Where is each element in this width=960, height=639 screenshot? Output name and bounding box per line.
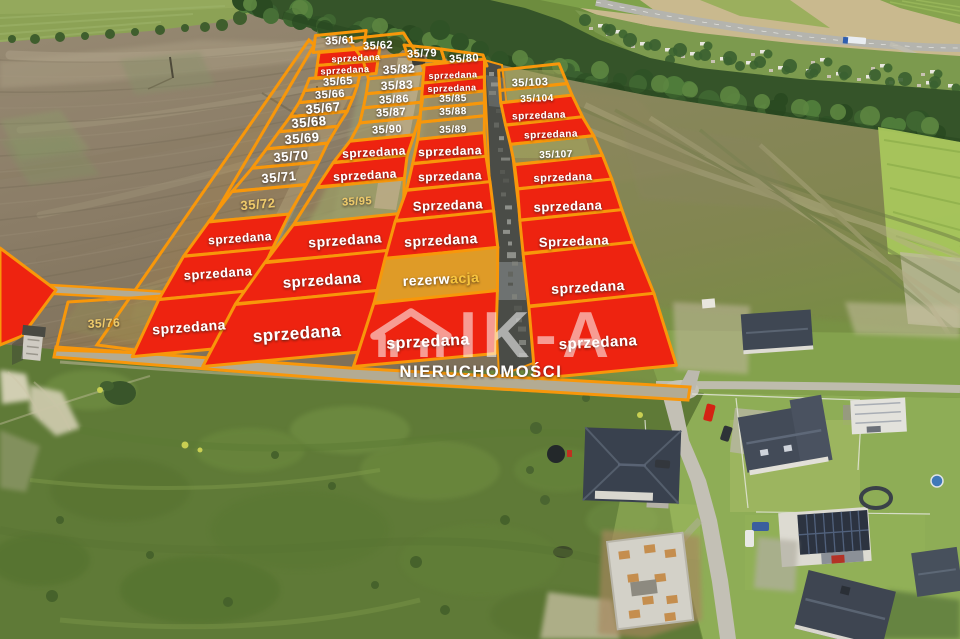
svg-text:sprzedana: sprzedana [533, 197, 603, 214]
svg-text:35/61: 35/61 [325, 34, 356, 48]
svg-text:Sprzedana: Sprzedana [413, 196, 484, 213]
svg-text:35/62: 35/62 [363, 39, 394, 53]
svg-text:35/85: 35/85 [439, 93, 467, 105]
svg-text:35/68: 35/68 [291, 113, 327, 131]
svg-text:sprzedana: sprzedana [418, 143, 482, 159]
svg-text:Sprzedana: Sprzedana [539, 232, 610, 249]
svg-text:35/83: 35/83 [380, 77, 413, 93]
svg-text:sprzedana: sprzedana [427, 82, 477, 94]
svg-text:IK-A: IK-A [459, 298, 615, 371]
svg-text:35/95: 35/95 [342, 195, 373, 209]
svg-text:sprzedana: sprzedana [418, 168, 482, 184]
svg-text:35/82: 35/82 [382, 61, 415, 77]
svg-text:35/71: 35/71 [261, 168, 297, 186]
svg-text:35/76: 35/76 [87, 315, 120, 331]
svg-text:NIERUCHOMOŚCI: NIERUCHOMOŚCI [400, 362, 563, 381]
svg-text:35/86: 35/86 [379, 93, 410, 107]
svg-text:sprzedana: sprzedana [533, 171, 593, 185]
svg-text:35/88: 35/88 [439, 106, 467, 118]
svg-text:35/80: 35/80 [449, 52, 480, 66]
svg-text:35/90: 35/90 [372, 123, 403, 137]
svg-text:35/69: 35/69 [284, 129, 320, 147]
svg-text:35/104: 35/104 [520, 93, 554, 105]
svg-text:35/65: 35/65 [323, 75, 354, 89]
svg-text:sprzedana: sprzedana [524, 129, 578, 142]
svg-text:sprzedana: sprzedana [512, 110, 566, 123]
svg-text:35/70: 35/70 [273, 147, 309, 165]
svg-text:35/89: 35/89 [439, 124, 467, 136]
svg-text:35/79: 35/79 [407, 47, 438, 61]
svg-text:35/87: 35/87 [376, 106, 407, 120]
svg-text:35/107: 35/107 [539, 149, 573, 161]
svg-text:35/72: 35/72 [240, 195, 276, 213]
svg-text:sprzedana: sprzedana [428, 69, 478, 81]
svg-text:35/103: 35/103 [512, 76, 549, 89]
